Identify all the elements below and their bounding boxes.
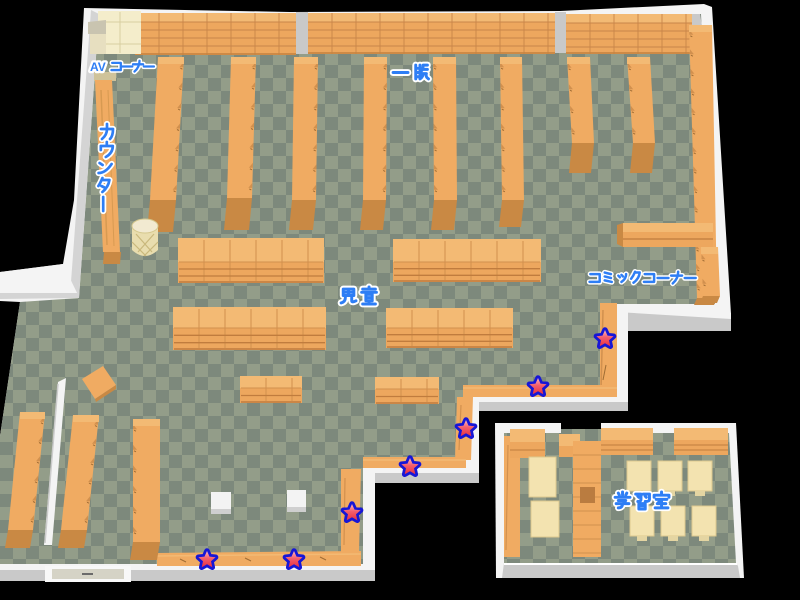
svg-text:AV: AV <box>90 60 106 74</box>
